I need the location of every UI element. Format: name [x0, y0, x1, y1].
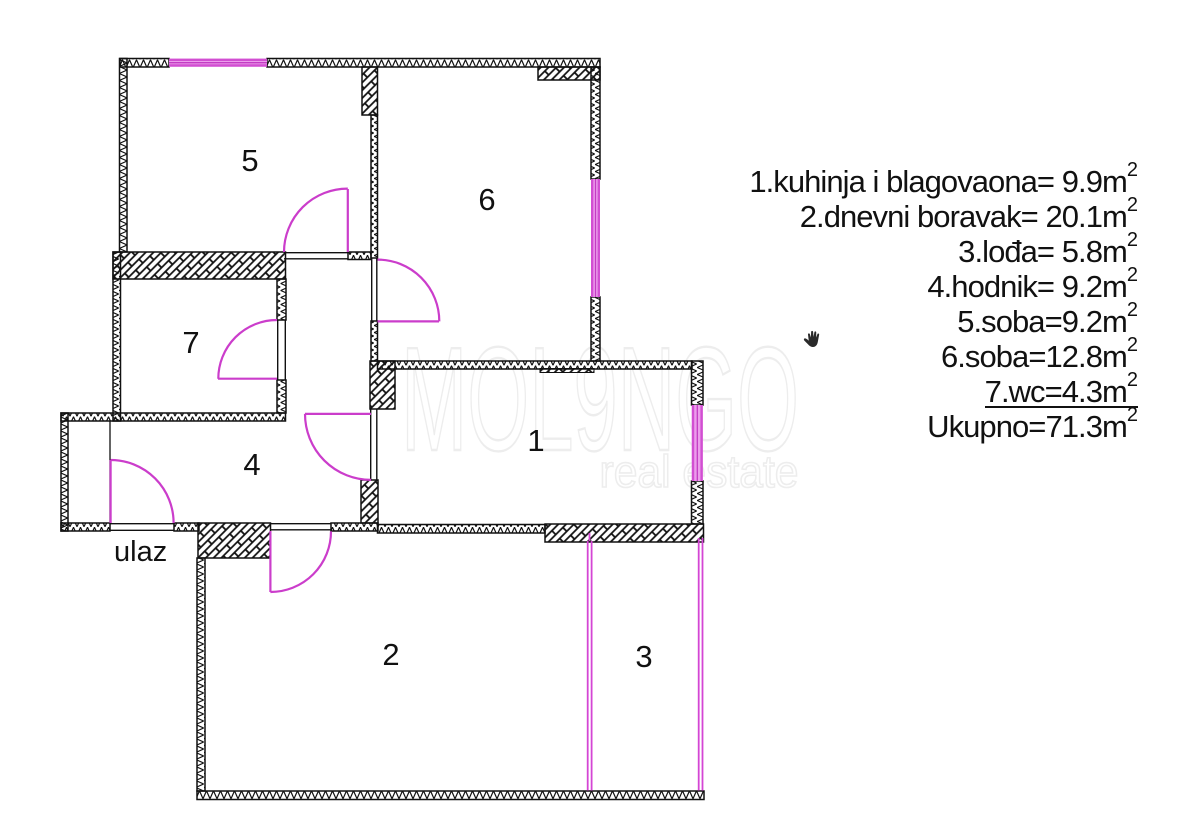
svg-text:5: 5 — [241, 143, 258, 178]
svg-text:2: 2 — [382, 637, 399, 672]
svg-text:ulaz: ulaz — [114, 536, 167, 568]
svg-text:6: 6 — [478, 182, 495, 217]
svg-text:3: 3 — [635, 639, 652, 674]
svg-text:4: 4 — [243, 447, 260, 482]
svg-text:1: 1 — [527, 423, 544, 458]
svg-text:7: 7 — [182, 325, 199, 360]
